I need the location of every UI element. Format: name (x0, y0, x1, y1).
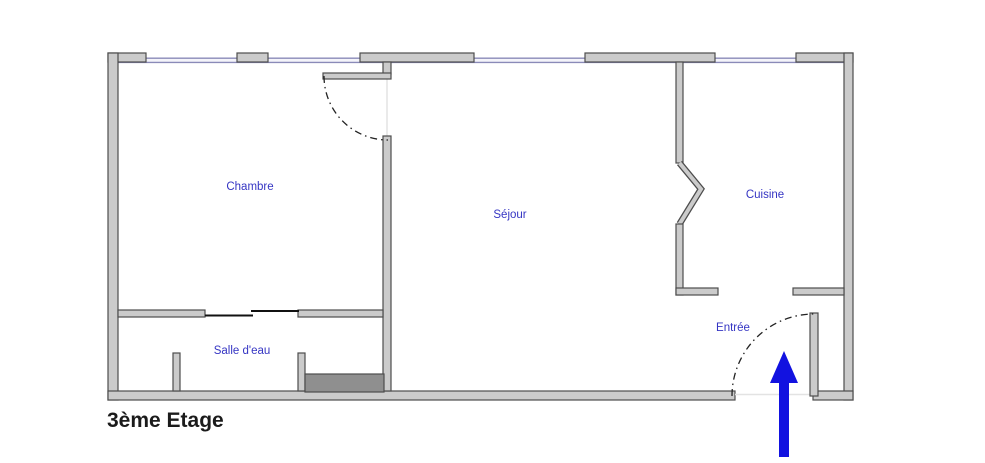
wall-chambre-sdb-right (298, 310, 383, 317)
wall-cuisine-bottom-left (676, 288, 718, 295)
sdb-stub-wall-1 (173, 353, 180, 391)
wall-chambre-sejour-lower (383, 136, 391, 391)
wall-cuisine-bottom-right (793, 288, 844, 295)
wall-top-block-2 (237, 53, 268, 62)
wall-sejour-cuisine-upper (676, 62, 683, 163)
wall-chambre-sdb-left (118, 310, 205, 317)
wall-right (844, 53, 853, 400)
entry-arrow-head (770, 351, 798, 383)
sdb-stub-wall-2 (298, 353, 305, 391)
floor-plan-drawing: Chambre Séjour Cuisine Salle d'eau Entré… (0, 0, 985, 463)
floor-title: 3ème Etage (107, 409, 224, 432)
doors (323, 73, 818, 396)
wall-chambre-sejour-upper (383, 62, 391, 74)
room-label-cuisine: Cuisine (746, 189, 784, 201)
window-band (118, 58, 844, 62)
wall-left (108, 53, 118, 400)
room-label-entree: Entrée (716, 322, 750, 334)
floor-plan: Chambre Séjour Cuisine Salle d'eau Entré… (0, 0, 985, 463)
entry-arrow-icon (770, 351, 798, 457)
room-label-sejour: Séjour (493, 209, 526, 221)
entry-arrow-shaft (779, 381, 789, 457)
wall-bottom-right (813, 391, 853, 400)
entry-door-leaf (810, 313, 818, 396)
room-labels: Chambre Séjour Cuisine Salle d'eau Entré… (214, 181, 784, 357)
interior-walls (118, 62, 844, 392)
chambre-door-arc (324, 76, 388, 140)
wall-bottom-left (108, 391, 735, 400)
wall-top-block-4 (585, 53, 715, 62)
wall-top-block-3 (360, 53, 474, 62)
sdb-fixture (305, 374, 384, 392)
room-label-chambre: Chambre (226, 181, 273, 193)
wall-sejour-cuisine-lower (676, 224, 683, 295)
chambre-door-leaf (323, 73, 391, 79)
room-label-salle-deau: Salle d'eau (214, 345, 271, 357)
